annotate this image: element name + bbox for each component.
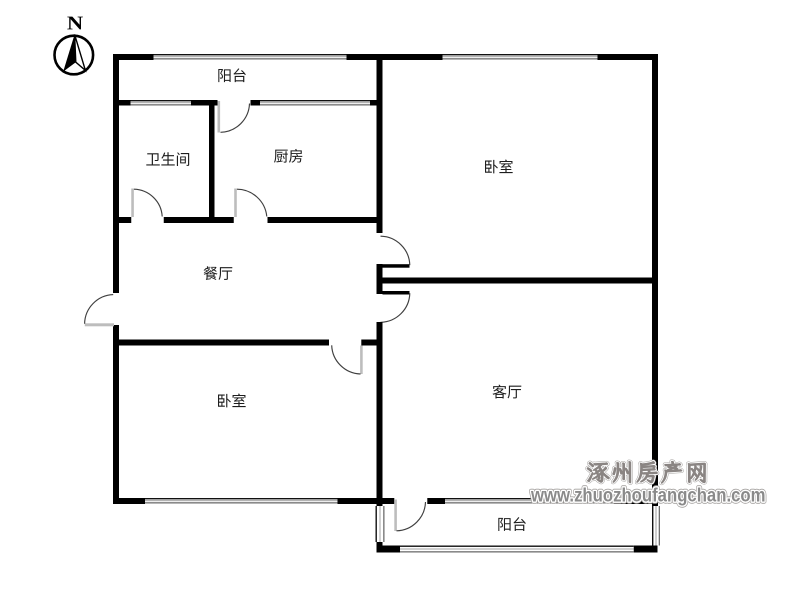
svg-text:www.zhuozhoufangchan.com: www.zhuozhoufangchan.com — [530, 486, 765, 507]
